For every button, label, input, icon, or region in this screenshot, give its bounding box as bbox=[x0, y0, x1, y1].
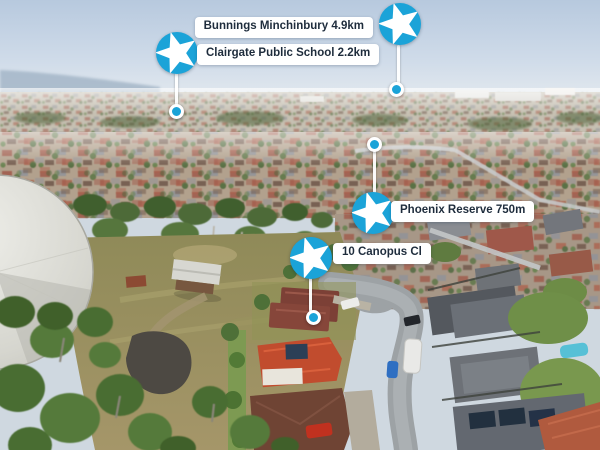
marker-line bbox=[175, 73, 178, 106]
marker-line bbox=[309, 278, 312, 312]
shipping-container bbox=[126, 275, 147, 288]
poi-label: 10 Canopus Cl bbox=[333, 243, 431, 264]
caravan bbox=[403, 338, 422, 373]
marker-dot bbox=[389, 82, 404, 97]
aerial-photo-background bbox=[0, 0, 600, 450]
marker-dot bbox=[169, 104, 184, 119]
marker-line bbox=[397, 45, 400, 84]
poi-label: Clairgate Public School 2.2km bbox=[197, 44, 379, 65]
star-icon bbox=[156, 32, 198, 74]
poi-label: Phoenix Reserve 750m bbox=[391, 201, 534, 222]
marker-line bbox=[373, 150, 376, 193]
marker-dot bbox=[367, 137, 382, 152]
star-icon bbox=[379, 3, 421, 45]
marker-dot bbox=[306, 310, 321, 325]
aerial-locality-photo: Bunnings Minchinbury 4.9km Clairgate Pub… bbox=[0, 0, 600, 450]
star-icon bbox=[352, 192, 394, 234]
blue-car bbox=[386, 361, 398, 379]
swimming-pool bbox=[559, 342, 589, 359]
poi-label: Bunnings Minchinbury 4.9km bbox=[195, 17, 373, 38]
star-icon bbox=[290, 237, 332, 279]
